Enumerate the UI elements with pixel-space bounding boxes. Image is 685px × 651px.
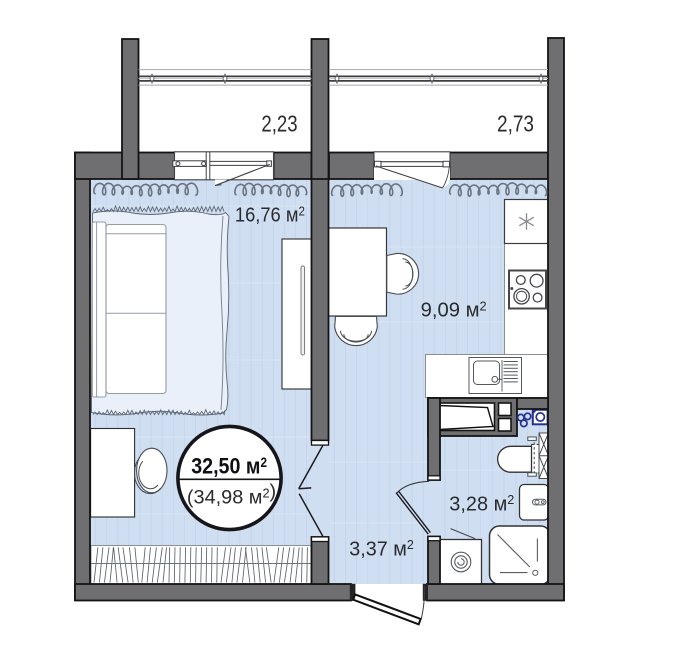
svg-text:9,09 м2: 9,09 м2 [421, 298, 487, 321]
svg-text:16,76 м2: 16,76 м2 [235, 203, 305, 226]
svg-text:3,28 м2: 3,28 м2 [449, 492, 514, 515]
svg-text:2,73: 2,73 [497, 111, 534, 137]
svg-text:2,23: 2,23 [261, 111, 297, 137]
svg-text:32,50 м2: 32,50 м2 [191, 453, 267, 478]
svg-text:3,37 м2: 3,37 м2 [349, 537, 414, 560]
